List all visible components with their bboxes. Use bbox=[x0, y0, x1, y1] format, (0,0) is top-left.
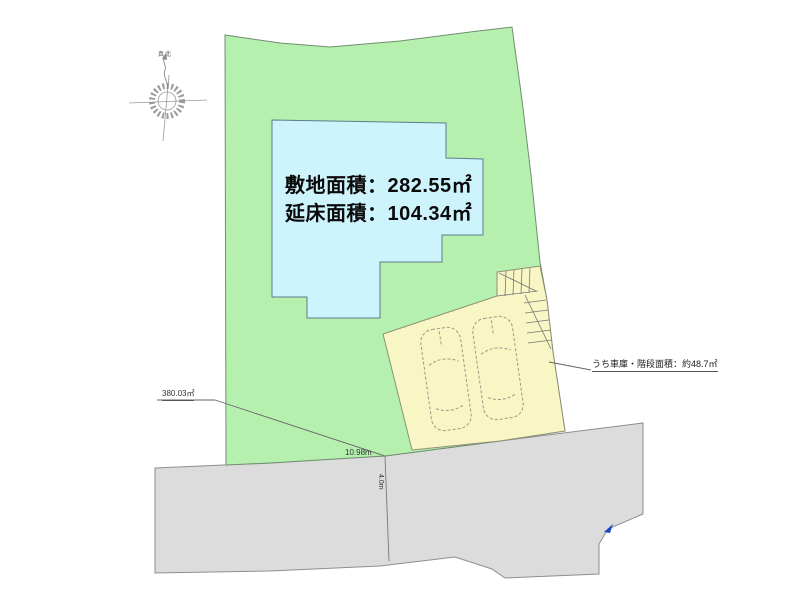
north-label: 真北 bbox=[158, 49, 172, 58]
site-plan-canvas: 敷地面積：282.55㎡ 延床面積：104.34㎡ うち車庫・階段面積：約48.… bbox=[0, 0, 800, 593]
garage-area-note: うち車庫・階段面積：約48.7㎡ bbox=[592, 357, 718, 372]
road-width-label: 4.0m bbox=[377, 474, 384, 490]
floor-area-label: 延床面積：104.34㎡ bbox=[285, 200, 472, 229]
site-plan-drawing bbox=[0, 0, 800, 593]
compass-rose-icon bbox=[129, 53, 207, 141]
boundary-area-label: 380.03㎡ bbox=[162, 388, 194, 401]
site-area-label: 敷地面積：282.55㎡ bbox=[285, 172, 472, 201]
frontage-dimension-label: 10.98m bbox=[345, 448, 372, 457]
